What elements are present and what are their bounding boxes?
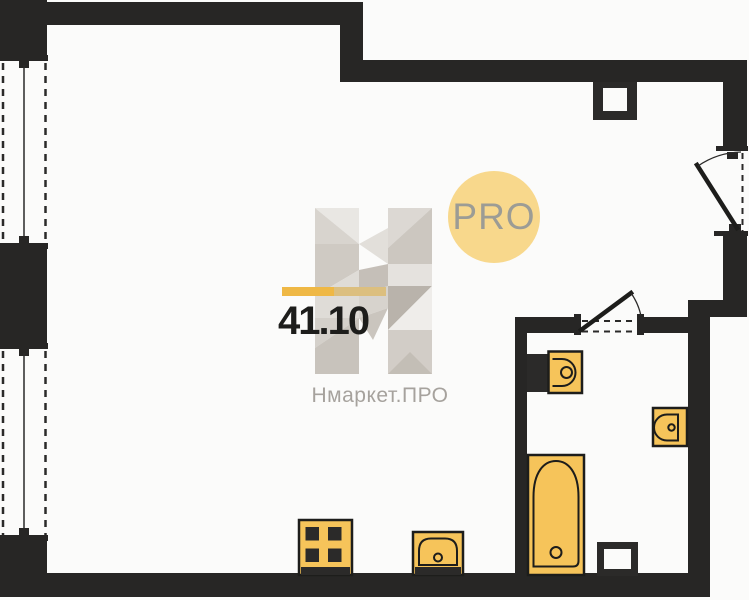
bathtub-icon <box>528 455 584 575</box>
door-swing-icon <box>697 152 743 231</box>
kitchen-sink-icon <box>413 532 463 575</box>
ventilation-duct-icon <box>593 82 637 120</box>
door-swing-icon <box>581 293 641 332</box>
washbasin-icon <box>653 408 687 446</box>
plan-linework <box>0 0 749 600</box>
floor-plan: 41.10 PRO Нмаркет.ПРО <box>0 0 749 600</box>
window-icon <box>3 63 46 243</box>
stove-icon <box>299 520 352 575</box>
window-icon <box>3 351 46 535</box>
toilet-icon <box>527 352 582 394</box>
ventilation-duct-icon <box>597 542 638 576</box>
